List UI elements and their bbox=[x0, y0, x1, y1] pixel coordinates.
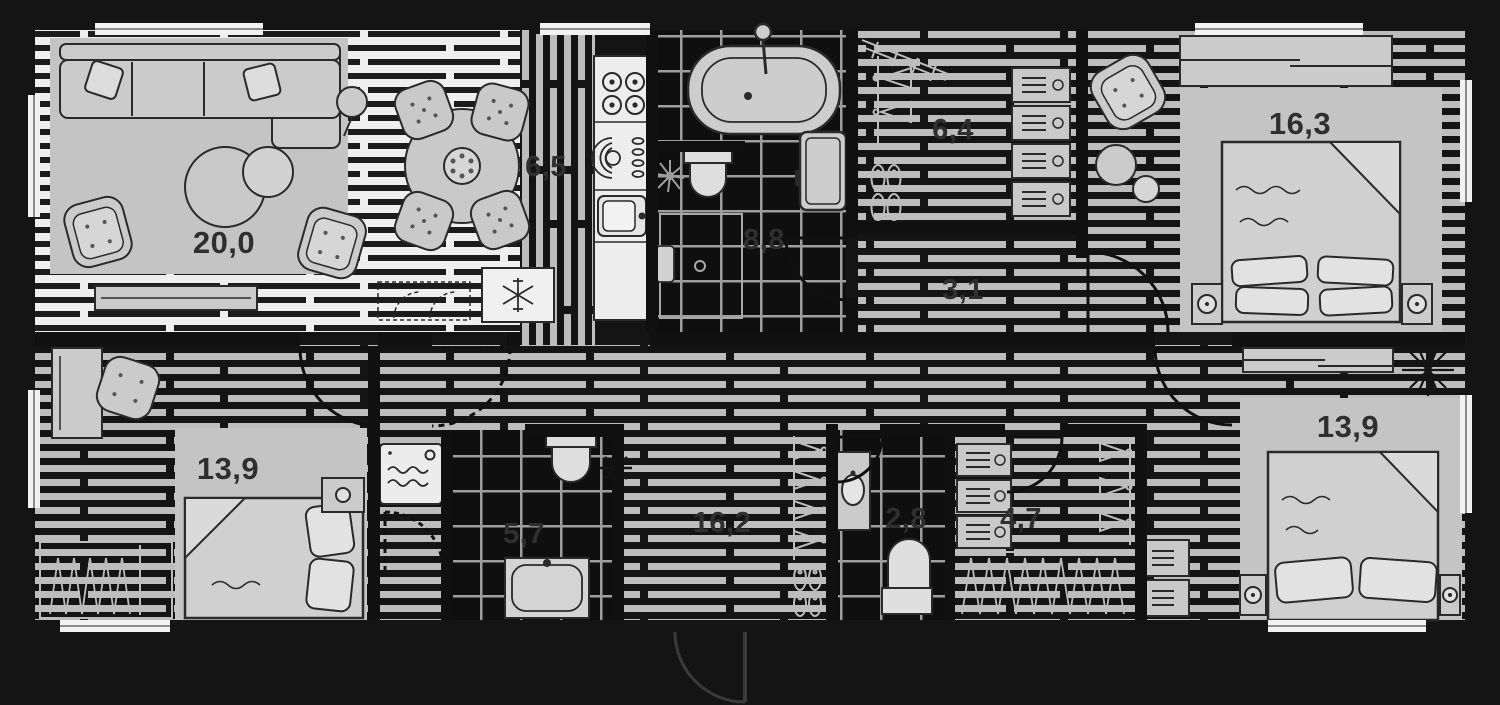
room-hallway-band-floor bbox=[370, 345, 1155, 430]
cabinet-handle bbox=[795, 170, 801, 186]
pillow bbox=[1317, 256, 1393, 286]
wall bbox=[35, 332, 300, 346]
wall bbox=[1076, 232, 1088, 258]
wall bbox=[650, 332, 1155, 346]
pillow bbox=[1359, 557, 1438, 602]
window bbox=[540, 23, 650, 35]
wall bbox=[945, 424, 955, 620]
nightstand-left bbox=[1240, 575, 1266, 615]
nightstand-left bbox=[1192, 284, 1222, 324]
window bbox=[1195, 23, 1363, 35]
kitchen-sink bbox=[598, 196, 646, 236]
room-label-closet: 6,4 bbox=[932, 114, 974, 146]
wc-toilet bbox=[882, 539, 932, 614]
wall bbox=[826, 424, 838, 620]
room-label-corridor: 3,1 bbox=[942, 274, 984, 306]
wall bbox=[880, 424, 1005, 437]
wall bbox=[507, 332, 520, 346]
bed-double bbox=[1222, 142, 1400, 322]
wall bbox=[368, 346, 380, 620]
room-label-bedroom3: 13,9 bbox=[1317, 409, 1379, 444]
entry-door bbox=[675, 632, 745, 702]
wall bbox=[1232, 332, 1465, 346]
wall bbox=[846, 298, 858, 332]
room-label-bedroom1: 16,3 bbox=[1269, 106, 1331, 141]
window bbox=[28, 390, 40, 508]
side-table-small bbox=[1133, 176, 1159, 202]
pillow bbox=[1274, 557, 1353, 603]
window bbox=[1460, 395, 1472, 513]
window bbox=[1268, 620, 1426, 632]
wall bbox=[1062, 424, 1135, 437]
nightstand-right bbox=[1402, 284, 1432, 324]
wall-partition bbox=[655, 141, 745, 152]
bed-3 bbox=[1268, 452, 1438, 620]
wall bbox=[612, 424, 624, 620]
wall bbox=[1135, 424, 1147, 620]
room-label-living: 20,0 bbox=[193, 225, 255, 260]
room-label-kitchen: 6,5 bbox=[525, 151, 567, 183]
bathtub-2 bbox=[505, 558, 589, 618]
room-label-bathroom: 8,8 bbox=[743, 224, 785, 256]
wall bbox=[525, 424, 612, 437]
bed-2 bbox=[185, 498, 363, 618]
pillow bbox=[306, 558, 355, 612]
fridge bbox=[482, 268, 554, 322]
wall bbox=[441, 430, 453, 620]
sofa-pillow bbox=[243, 63, 282, 102]
wall bbox=[858, 222, 1078, 234]
floor-plan: 20,0 6,5 8,8 6,4 3,1 16,3 13,9 5,7 16,2 … bbox=[0, 0, 1500, 705]
bath-faucet bbox=[755, 24, 771, 40]
coffee-table-small bbox=[243, 147, 293, 197]
kitchen-counter bbox=[594, 56, 650, 320]
window bbox=[1460, 80, 1472, 202]
pillow bbox=[1231, 255, 1308, 286]
room-label-bathroom2: 5,7 bbox=[503, 518, 545, 550]
window bbox=[28, 95, 40, 217]
window bbox=[60, 620, 170, 632]
room-label-hallway: 16,2 bbox=[693, 507, 751, 539]
nightstand-right bbox=[1440, 575, 1460, 615]
room-label-bedroom2: 13,9 bbox=[197, 451, 259, 486]
small-sink bbox=[656, 246, 674, 282]
window bbox=[95, 23, 263, 35]
pillow bbox=[1236, 287, 1309, 315]
pillow bbox=[1319, 286, 1392, 316]
room-label-wc: 2,8 bbox=[885, 503, 927, 535]
wc-sink bbox=[836, 452, 870, 530]
room-label-closet2: 4,7 bbox=[1000, 503, 1042, 535]
vanity-cabinet bbox=[795, 132, 846, 210]
laundry bbox=[380, 444, 442, 504]
wall bbox=[378, 332, 432, 346]
wall-tv-shelf bbox=[322, 478, 364, 512]
sofa-back bbox=[60, 44, 340, 60]
wall bbox=[846, 30, 858, 237]
floor-lamp bbox=[337, 87, 367, 117]
side-table bbox=[1096, 145, 1136, 185]
wall bbox=[646, 30, 658, 332]
floor-plan-canvas: 20,0 6,5 8,8 6,4 3,1 16,3 13,9 5,7 16,2 … bbox=[0, 0, 1500, 705]
wall bbox=[1076, 30, 1088, 232]
